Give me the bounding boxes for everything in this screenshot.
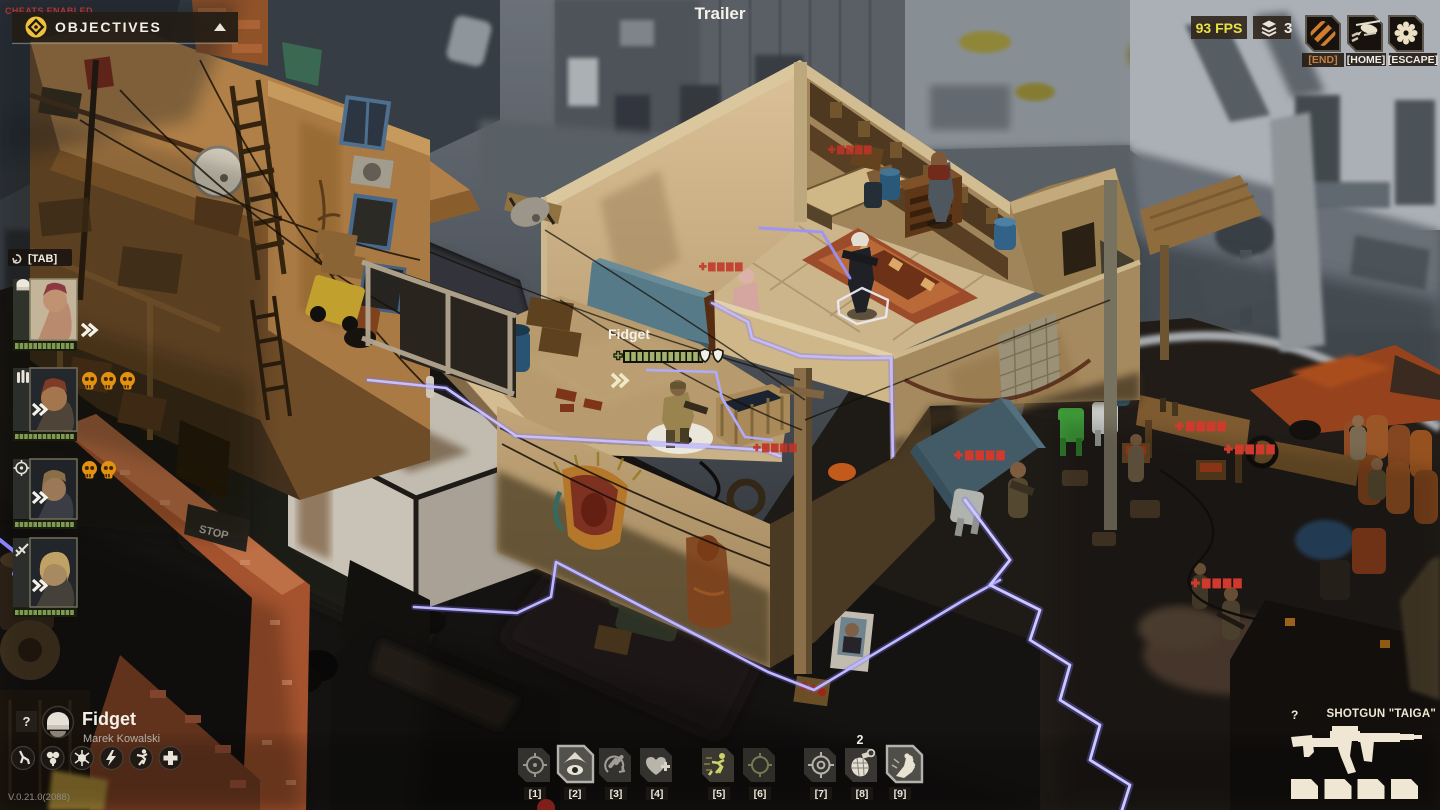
svg-text:[6]: [6] <box>754 788 767 800</box>
svg-text:?: ? <box>1291 708 1298 722</box>
svg-text:[2]: [2] <box>569 788 582 800</box>
svg-text:V.0.21.0(2088): V.0.21.0(2088) <box>8 792 70 803</box>
svg-text:[ESCAPE]: [ESCAPE] <box>1388 54 1438 66</box>
svg-text:?: ? <box>23 714 31 729</box>
svg-text:93 FPS: 93 FPS <box>1196 20 1243 36</box>
svg-text:[END]: [END] <box>1308 54 1337 66</box>
svg-text:[TAB]: [TAB] <box>28 253 57 265</box>
svg-text:SHOTGUN "TAIGA": SHOTGUN "TAIGA" <box>1326 708 1436 720</box>
svg-text:3: 3 <box>1284 20 1292 37</box>
svg-text:2: 2 <box>857 733 864 747</box>
svg-text:[3]: [3] <box>610 788 623 800</box>
svg-text:Fidget: Fidget <box>608 326 650 342</box>
svg-text:Marek Kowalski: Marek Kowalski <box>83 733 160 745</box>
svg-text:[7]: [7] <box>815 788 828 800</box>
svg-text:OBJECTIVES: OBJECTIVES <box>55 19 162 35</box>
svg-text:[4]: [4] <box>651 788 664 800</box>
svg-text:Fidget: Fidget <box>82 709 136 729</box>
svg-text:[1]: [1] <box>529 788 542 800</box>
svg-text:Trailer: Trailer <box>694 4 745 23</box>
svg-text:[5]: [5] <box>713 788 726 800</box>
svg-text:[HOME]: [HOME] <box>1347 54 1386 66</box>
svg-text:[9]: [9] <box>894 788 907 800</box>
svg-text:[8]: [8] <box>856 788 869 800</box>
